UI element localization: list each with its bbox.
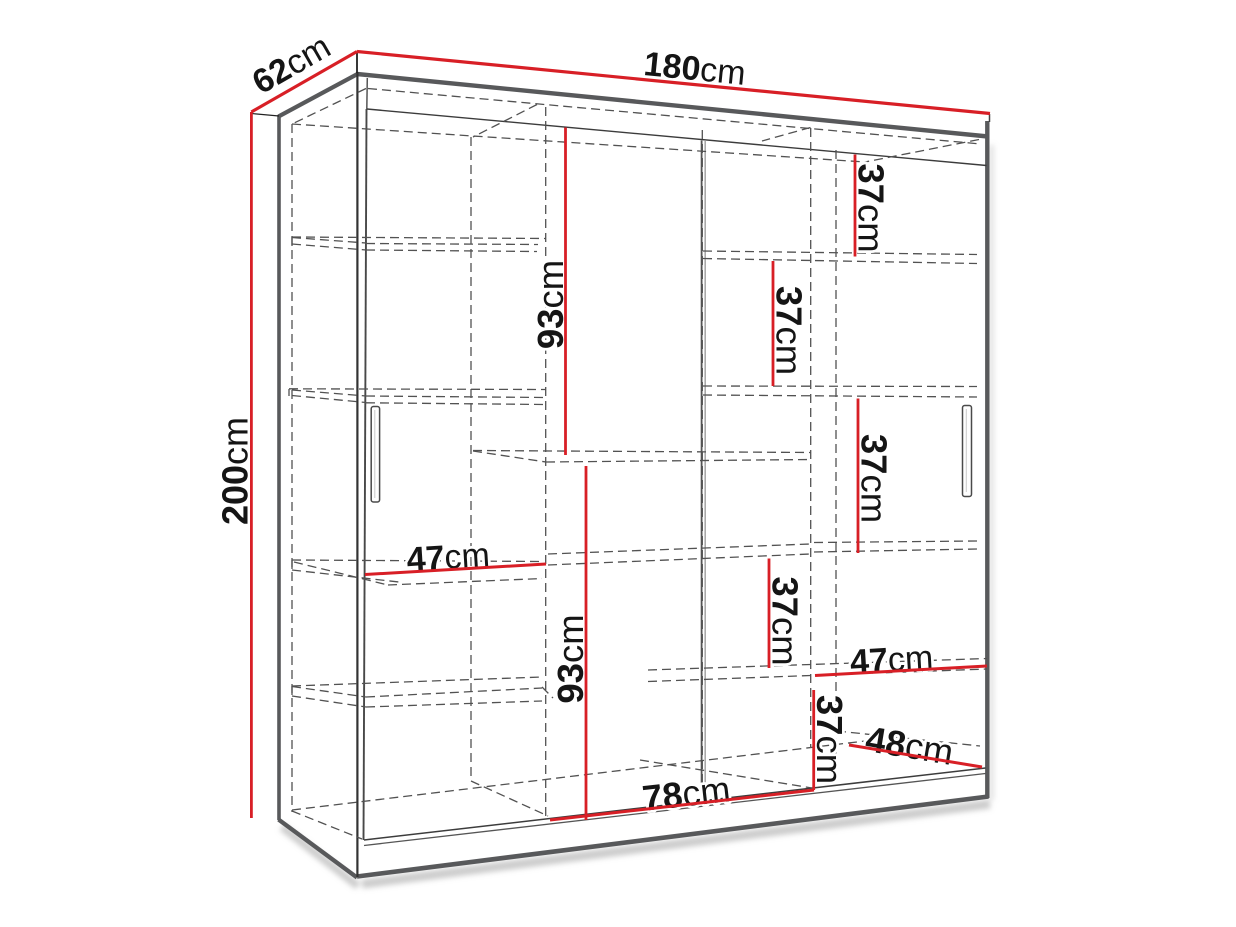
- svg-text:47cm: 47cm: [849, 639, 934, 682]
- svg-text:37cm: 37cm: [851, 163, 892, 252]
- svg-text:37cm: 37cm: [854, 434, 895, 523]
- svg-text:200cm: 200cm: [215, 417, 256, 525]
- svg-text:37cm: 37cm: [769, 286, 810, 375]
- svg-text:37cm: 37cm: [765, 576, 806, 665]
- svg-text:37cm: 37cm: [809, 695, 850, 784]
